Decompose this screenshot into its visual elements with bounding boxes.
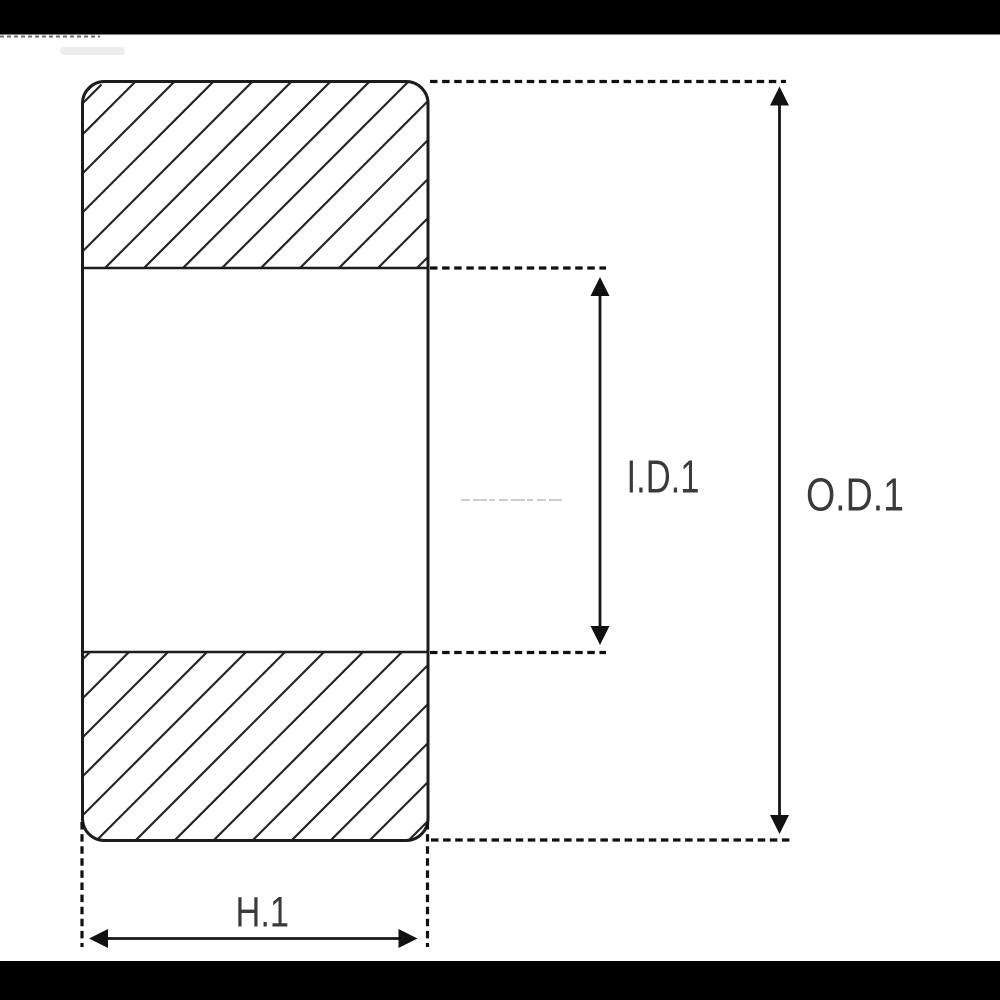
svg-text:H.1: H.1: [236, 889, 290, 937]
svg-text:O.D.1: O.D.1: [806, 469, 904, 521]
svg-text:I.D.1: I.D.1: [627, 451, 700, 503]
